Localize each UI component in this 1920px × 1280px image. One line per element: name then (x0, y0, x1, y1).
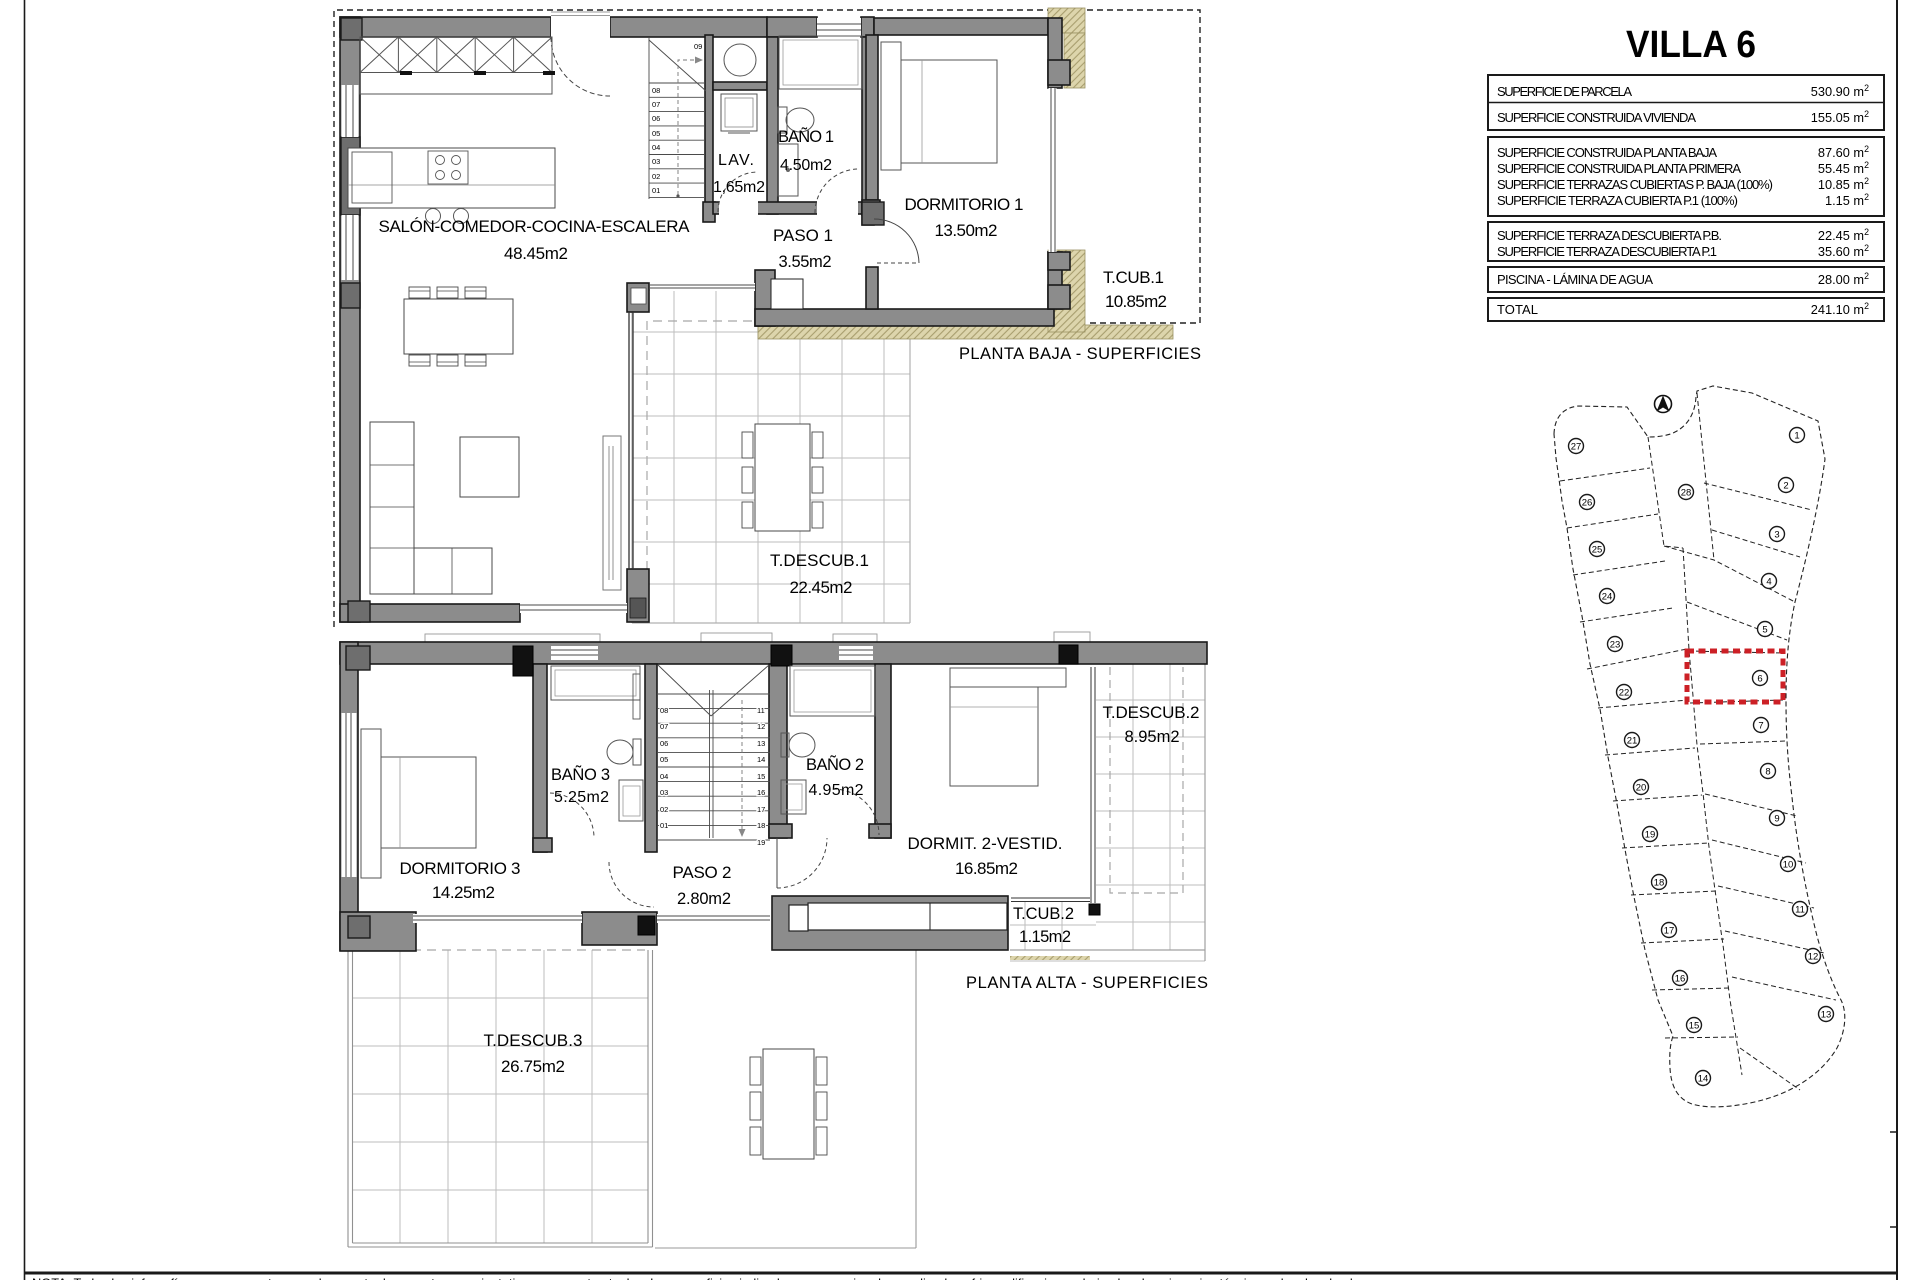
svg-text:22: 22 (1619, 687, 1630, 698)
svg-text:35.60 m2: 35.60 m2 (1818, 243, 1869, 259)
svg-text:155.05 m2: 155.05 m2 (1811, 109, 1869, 125)
svg-text:5.25m2: 5.25m2 (554, 789, 609, 806)
svg-text:PASO 2: PASO 2 (673, 863, 732, 882)
svg-text:1.15m2: 1.15m2 (1019, 928, 1071, 946)
svg-text:03: 03 (652, 157, 660, 166)
svg-text:05: 05 (660, 755, 668, 764)
svg-text:1: 1 (1794, 430, 1799, 441)
svg-text:4.50m2: 4.50m2 (780, 157, 832, 174)
svg-text:24: 24 (1602, 591, 1613, 602)
svg-text:T.CUB.2: T.CUB.2 (1013, 905, 1074, 923)
svg-text:12: 12 (1808, 951, 1819, 962)
svg-text:16.85m2: 16.85m2 (955, 859, 1018, 878)
svg-text:02: 02 (652, 172, 660, 181)
svg-text:27: 27 (1571, 441, 1582, 452)
svg-text:4: 4 (1766, 576, 1771, 587)
svg-text:3: 3 (1774, 529, 1779, 540)
svg-text:14.25m2: 14.25m2 (432, 883, 495, 902)
svg-text:2: 2 (1783, 480, 1788, 491)
svg-text:9: 9 (1774, 813, 1779, 824)
svg-text:20: 20 (1636, 782, 1647, 793)
svg-text:03: 03 (660, 788, 668, 797)
svg-text:TOTAL: TOTAL (1497, 302, 1538, 317)
svg-text:48.45m2: 48.45m2 (504, 244, 568, 263)
svg-text:87.60 m2: 87.60 m2 (1818, 144, 1869, 160)
svg-text:DORMIT. 2-VESTID.: DORMIT. 2-VESTID. (908, 834, 1063, 853)
svg-text:DORMITORIO 3: DORMITORIO 3 (400, 859, 521, 878)
svg-text:241.10 m2: 241.10 m2 (1811, 301, 1869, 317)
svg-text:SUPERFICIE CONSTRUIDA PLANTA P: SUPERFICIE CONSTRUIDA PLANTA PRIMERA (1497, 161, 1741, 176)
svg-text:6: 6 (1757, 673, 1762, 684)
svg-text:06: 06 (652, 114, 660, 123)
svg-text:04: 04 (652, 143, 660, 152)
svg-text:T.DESCUB.3: T.DESCUB.3 (484, 1031, 583, 1050)
svg-text:11: 11 (757, 706, 765, 715)
svg-text:DORMITORIO 1: DORMITORIO 1 (905, 195, 1024, 214)
svg-text:55.45 m2: 55.45 m2 (1818, 160, 1869, 176)
svg-text:SUPERFICIE TERRAZA DESCUBIERTA: SUPERFICIE TERRAZA DESCUBIERTA P.B. (1497, 228, 1722, 243)
svg-text:07: 07 (660, 722, 668, 731)
svg-text:08: 08 (660, 706, 668, 715)
svg-text:8.95m2: 8.95m2 (1125, 728, 1180, 746)
svg-text:PLANTA ALTA - SUPERFICIES: PLANTA ALTA - SUPERFICIES (966, 974, 1208, 992)
svg-text:15: 15 (1689, 1020, 1700, 1031)
svg-text:T.DESCUB.1: T.DESCUB.1 (770, 551, 869, 570)
svg-text:BAÑO 2: BAÑO 2 (806, 754, 864, 774)
svg-text:22.45 m2: 22.45 m2 (1818, 227, 1869, 243)
svg-text:BAÑO 3: BAÑO 3 (551, 764, 610, 784)
svg-text:01: 01 (652, 186, 660, 195)
svg-text:16: 16 (757, 788, 765, 797)
svg-text:07: 07 (652, 100, 660, 109)
svg-text:16: 16 (1675, 973, 1686, 984)
svg-text:BAÑO 1: BAÑO 1 (778, 126, 834, 146)
svg-text:26: 26 (1582, 497, 1593, 508)
svg-text:10.85 m2: 10.85 m2 (1818, 176, 1869, 192)
svg-text:05: 05 (652, 129, 660, 138)
svg-text:SUPERFICIE CONSTRUIDA VIVIENDA: SUPERFICIE CONSTRUIDA VIVIENDA (1497, 110, 1696, 125)
svg-text:26.75m2: 26.75m2 (501, 1057, 565, 1076)
svg-text:04: 04 (660, 772, 668, 781)
svg-text:12: 12 (757, 722, 765, 731)
svg-text:VILLA 6: VILLA 6 (1626, 24, 1756, 66)
svg-text:1.15 m2: 1.15 m2 (1825, 192, 1869, 208)
svg-text:8: 8 (1765, 766, 1770, 777)
svg-text:7: 7 (1758, 720, 1763, 731)
svg-text:17: 17 (1664, 925, 1675, 936)
svg-text:SUPERFICIE TERRAZA DESCUBIERTA: SUPERFICIE TERRAZA DESCUBIERTA P.1 (1497, 244, 1717, 259)
svg-text:13: 13 (757, 739, 765, 748)
svg-text:02: 02 (660, 805, 668, 814)
svg-text:PLANTA BAJA - SUPERFICIES: PLANTA BAJA - SUPERFICIES (959, 345, 1201, 363)
svg-text:06: 06 (660, 739, 668, 748)
svg-text:3.55m2: 3.55m2 (779, 253, 832, 271)
svg-text:23: 23 (1610, 639, 1621, 650)
svg-text:13: 13 (1821, 1009, 1832, 1020)
svg-text:LAV.: LAV. (718, 152, 754, 169)
svg-text:18: 18 (757, 821, 765, 830)
svg-text:11: 11 (1795, 904, 1805, 915)
svg-text:28: 28 (1681, 487, 1692, 498)
svg-text:19: 19 (1645, 829, 1656, 840)
svg-text:22.45m2: 22.45m2 (790, 578, 853, 597)
svg-text:PASO 1: PASO 1 (773, 226, 833, 245)
svg-text:10.85m2: 10.85m2 (1105, 292, 1167, 311)
svg-text:21: 21 (1627, 735, 1638, 746)
svg-text:28.00 m2: 28.00 m2 (1818, 271, 1869, 287)
svg-text:13.50m2: 13.50m2 (935, 221, 998, 240)
svg-text:14: 14 (1698, 1073, 1709, 1084)
svg-text:17: 17 (757, 805, 765, 814)
svg-text:25: 25 (1592, 544, 1603, 555)
svg-text:09: 09 (694, 42, 702, 51)
svg-text:10: 10 (1783, 859, 1794, 870)
svg-text:19: 19 (757, 838, 765, 847)
svg-text:PISCINA - LÁMINA DE AGUA: PISCINA - LÁMINA DE AGUA (1497, 272, 1653, 287)
svg-text:5: 5 (1762, 624, 1767, 635)
svg-text:SUPERFICIE TERRAZA CUBIERTA P.: SUPERFICIE TERRAZA CUBIERTA P.1 (100%) (1497, 193, 1738, 208)
svg-text:08: 08 (652, 86, 660, 95)
svg-text:01: 01 (660, 821, 668, 830)
svg-text:SALÓN-COMEDOR-COCINA-ESCALERA: SALÓN-COMEDOR-COCINA-ESCALERA (379, 217, 691, 236)
svg-text:15: 15 (757, 772, 765, 781)
svg-text:T.CUB.1: T.CUB.1 (1103, 268, 1164, 287)
svg-text:SUPERFICIE TERRAZAS CUBIERTAS: SUPERFICIE TERRAZAS CUBIERTAS P. BAJA (1… (1497, 177, 1773, 192)
svg-text:530.90 m2: 530.90 m2 (1811, 83, 1869, 99)
svg-text:1,65m2: 1,65m2 (713, 179, 765, 196)
svg-text:4.95m2: 4.95m2 (809, 782, 864, 799)
svg-text:NOTA: Todas las infografías qu: NOTA: Todas las infografías que se muest… (32, 1276, 1372, 1280)
svg-text:T.DESCUB.2: T.DESCUB.2 (1103, 703, 1200, 722)
svg-text:14: 14 (757, 755, 765, 764)
svg-text:SUPERFICIE CONSTRUIDA PLANTA B: SUPERFICIE CONSTRUIDA PLANTA BAJA (1497, 145, 1717, 160)
svg-text:2.80m2: 2.80m2 (677, 890, 731, 908)
svg-text:18: 18 (1654, 877, 1665, 888)
svg-text:SUPERFICIE DE PARCELA: SUPERFICIE DE PARCELA (1497, 84, 1632, 99)
